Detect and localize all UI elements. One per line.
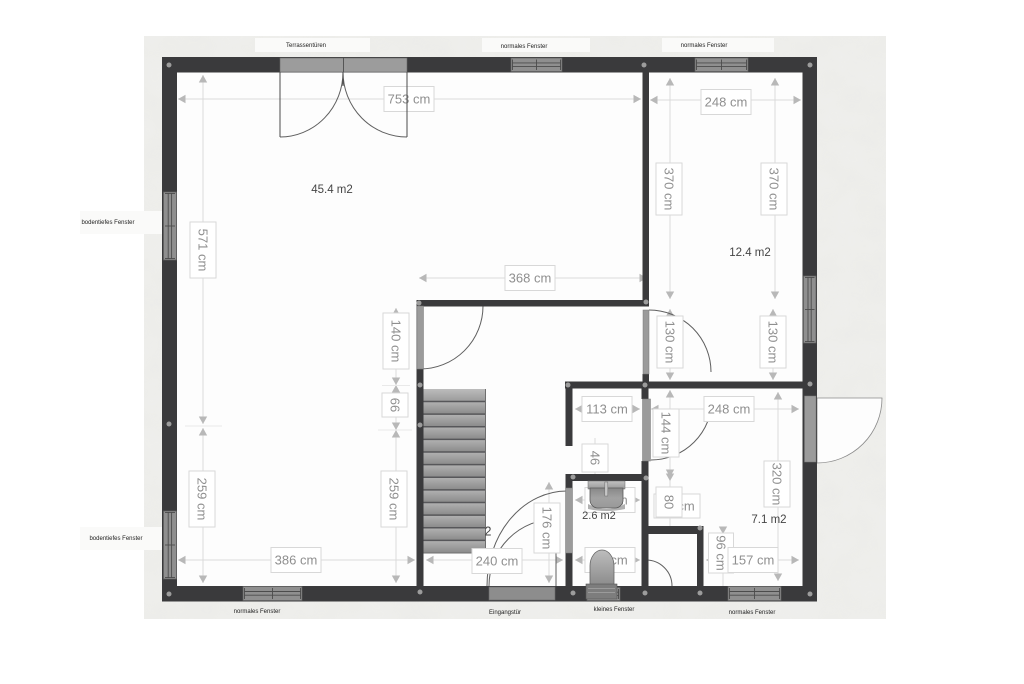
svg-text:2: 2 xyxy=(485,524,492,538)
svg-text:386 cm: 386 cm xyxy=(275,553,318,568)
svg-text:248 cm: 248 cm xyxy=(708,402,751,417)
svg-text:130 cm: 130 cm xyxy=(765,321,780,364)
svg-text:12.4 m2: 12.4 m2 xyxy=(729,247,771,259)
svg-text:259 cm: 259 cm xyxy=(194,478,209,521)
svg-text:240 cm: 240 cm xyxy=(476,554,519,569)
svg-text:368 cm: 368 cm xyxy=(509,271,552,286)
svg-text:320 cm: 320 cm xyxy=(769,463,784,506)
svg-text:bodentiefes Fenster: bodentiefes Fenster xyxy=(89,536,142,542)
svg-text:157 cm: 157 cm xyxy=(732,553,775,568)
svg-text:kleines Fenster: kleines Fenster xyxy=(594,607,635,613)
svg-text:7.1 m2: 7.1 m2 xyxy=(751,514,786,526)
svg-text:140 cm: 140 cm xyxy=(388,320,403,363)
svg-text:bodentiefes Fenster: bodentiefes Fenster xyxy=(81,220,134,226)
svg-text:normales Fenster: normales Fenster xyxy=(234,609,281,615)
svg-text:176 cm: 176 cm xyxy=(539,507,554,550)
svg-text:2.6 m2: 2.6 m2 xyxy=(582,510,616,522)
svg-text:370 cm: 370 cm xyxy=(661,168,676,211)
svg-text:Eingangstür: Eingangstür xyxy=(489,610,521,616)
svg-text:normales Fenster: normales Fenster xyxy=(681,43,728,49)
svg-text:normales Fenster: normales Fenster xyxy=(501,44,548,50)
svg-text:571 cm: 571 cm xyxy=(195,229,210,272)
svg-text:259 cm: 259 cm xyxy=(386,478,401,521)
svg-text:Terrassentüren: Terrassentüren xyxy=(286,43,326,49)
svg-text:96 cm: 96 cm xyxy=(713,535,728,570)
svg-text:46: 46 xyxy=(587,451,602,465)
svg-text:80: 80 xyxy=(661,495,676,509)
svg-text:113 cm: 113 cm xyxy=(586,402,628,417)
svg-text:45.4 m2: 45.4 m2 xyxy=(311,184,353,196)
svg-text:66: 66 xyxy=(387,398,402,412)
svg-text:130 cm: 130 cm xyxy=(662,321,677,364)
svg-text:144 cm: 144 cm xyxy=(658,412,673,455)
svg-text:248 cm: 248 cm xyxy=(705,95,748,110)
svg-text:753 cm: 753 cm xyxy=(388,92,431,107)
svg-text:normales Fenster: normales Fenster xyxy=(729,610,776,616)
svg-text:370 cm: 370 cm xyxy=(766,168,781,211)
